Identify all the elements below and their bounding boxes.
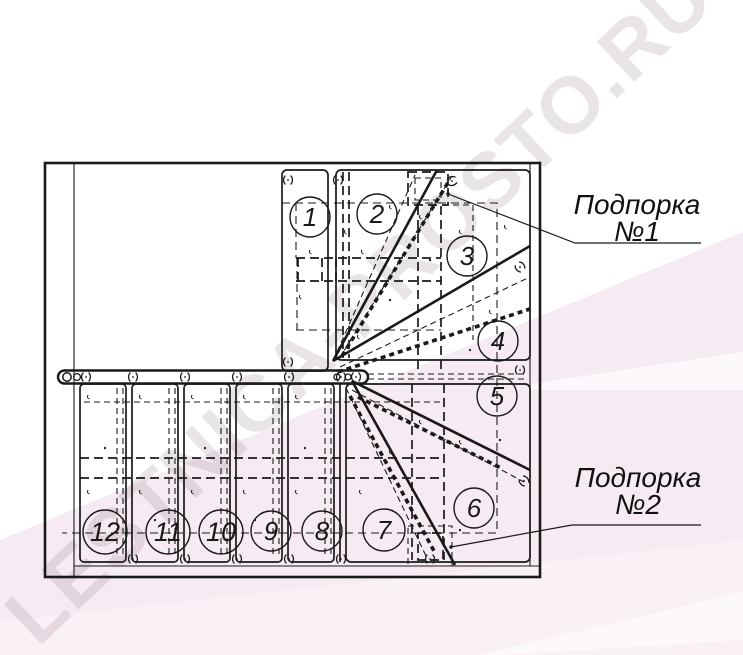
step-number-2: 2 bbox=[369, 199, 385, 229]
page: { "watermark": { "text": "LESTNICA-PROST… bbox=[0, 0, 743, 655]
support2-label-line2: №2 bbox=[615, 489, 661, 520]
step-number-8: 8 bbox=[315, 516, 330, 546]
step-number-12: 12 bbox=[90, 517, 120, 547]
step-number-1: 1 bbox=[303, 202, 317, 232]
step-number-7: 7 bbox=[377, 515, 393, 545]
step-number-5: 5 bbox=[490, 381, 505, 411]
step-number-4: 4 bbox=[491, 326, 505, 356]
staircase-plan-drawing: LESTNICA-PROSTO.RU bbox=[0, 0, 743, 655]
step-number-3: 3 bbox=[460, 241, 475, 271]
support1-label-line2: №1 bbox=[614, 216, 660, 247]
step-number-11: 11 bbox=[154, 517, 182, 547]
step-number-9: 9 bbox=[264, 516, 278, 546]
step-number-6: 6 bbox=[467, 493, 482, 523]
step-number-10: 10 bbox=[206, 517, 236, 547]
